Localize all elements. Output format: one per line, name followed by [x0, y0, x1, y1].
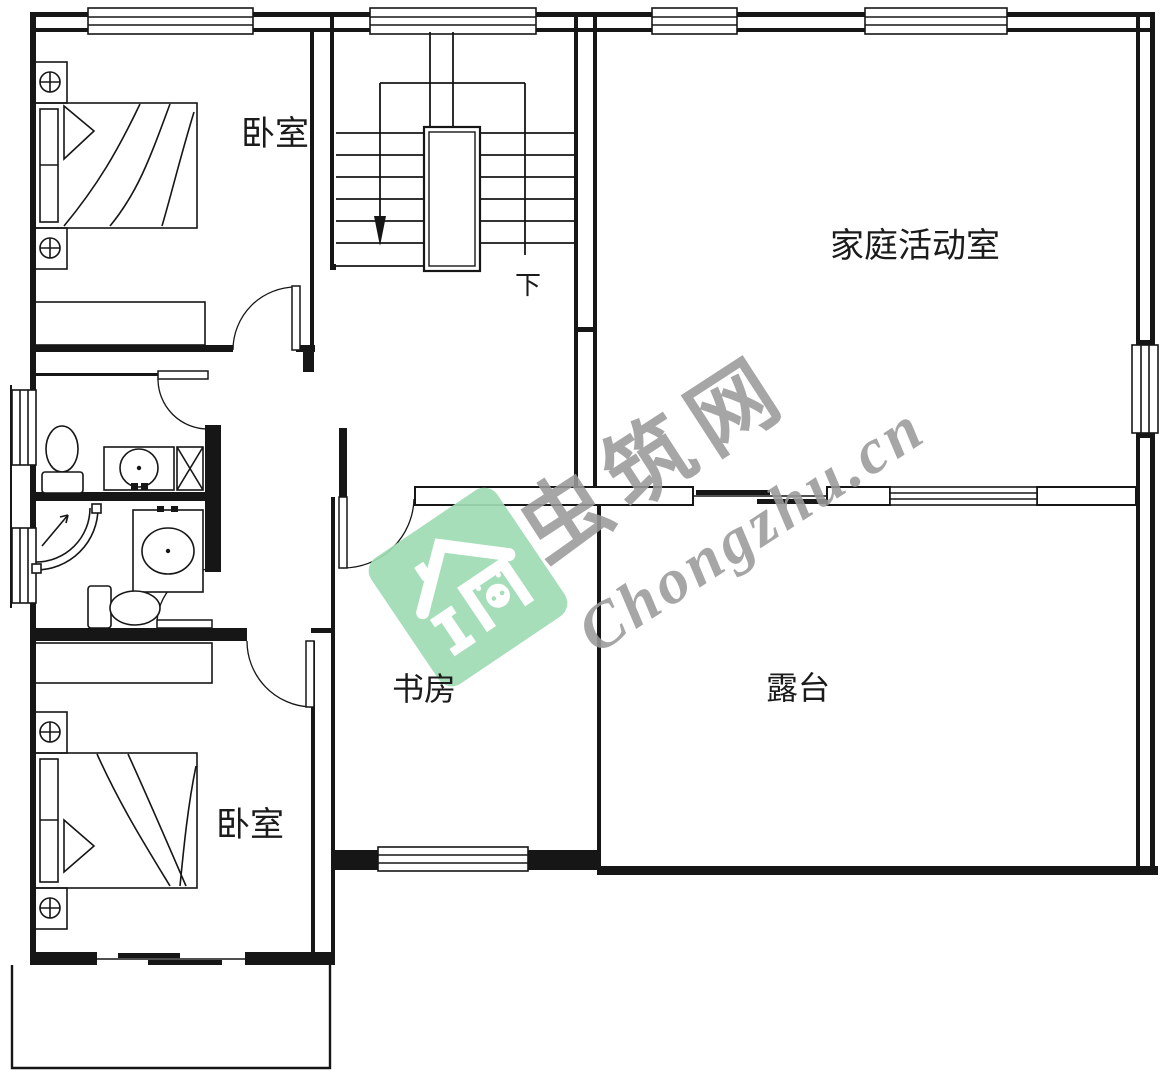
room-label-study: 书房 [392, 671, 456, 707]
room-label-bedroom-top: 卧室 [241, 115, 309, 153]
window-icon [378, 847, 528, 871]
wardrobe-icon [32, 302, 205, 345]
bed-icon [33, 62, 197, 269]
door-icon [233, 286, 300, 350]
window-icon [890, 487, 1037, 505]
lamp-icon [40, 72, 60, 92]
shaft-icon [177, 447, 203, 490]
room-label-terrace: 露台 [766, 670, 830, 706]
window-icon [88, 8, 253, 34]
lamp-icon [40, 898, 60, 918]
balcony-outline [12, 965, 330, 1068]
window-icon [370, 8, 536, 34]
lamp-icon [40, 238, 60, 258]
room-label-family-activity: 家庭活动室 [830, 227, 1000, 265]
door-icon [158, 371, 208, 429]
windows [12, 8, 1158, 871]
bathroom-fixtures [32, 426, 203, 628]
sliding-door-icon [97, 953, 245, 965]
wardrobe-icon [32, 643, 212, 683]
window-icon [12, 390, 36, 465]
watermark: 虫筑网 Chongzhu.cn [362, 337, 937, 692]
lamp-icon [40, 722, 60, 742]
door-icon [247, 641, 314, 707]
shower-icon [32, 504, 101, 573]
window-icon [1132, 345, 1158, 433]
window-icon [865, 8, 1007, 34]
window-icon [652, 8, 737, 34]
staircase [336, 32, 574, 271]
sink-icon [104, 447, 174, 490]
floor-plan-page: 虫筑网 Chongzhu.cn 卧室 家庭活动室 书房 露台 卧室 下 [0, 0, 1171, 1080]
sink-icon [133, 506, 203, 592]
stairs-down-arrow-icon [374, 216, 386, 246]
stairs-down-label: 下 [515, 271, 541, 300]
floor-plan-svg: 虫筑网 Chongzhu.cn 卧室 家庭活动室 书房 露台 卧室 下 [0, 0, 1171, 1080]
room-label-bedroom-bottom: 卧室 [216, 806, 284, 844]
toilet-icon [42, 426, 83, 493]
bed-icon [33, 712, 197, 929]
